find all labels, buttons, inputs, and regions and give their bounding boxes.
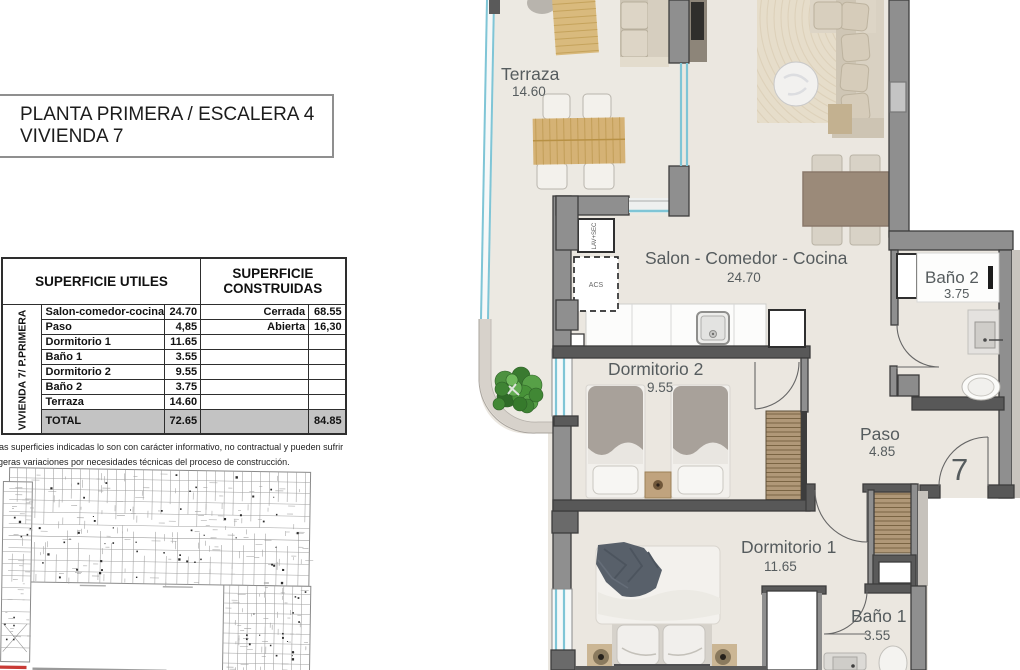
svg-text:Paso: Paso — [860, 424, 900, 444]
svg-text:14.60: 14.60 — [512, 84, 546, 99]
svg-text:Baño 2: Baño 2 — [925, 268, 979, 287]
svg-text:Baño 1: Baño 1 — [851, 606, 906, 626]
svg-text:3.55: 3.55 — [864, 628, 890, 643]
svg-text:Dormitorio 2: Dormitorio 2 — [608, 359, 703, 379]
svg-text:24.70: 24.70 — [727, 270, 761, 285]
svg-text:Salon - Comedor - Cocina: Salon - Comedor - Cocina — [645, 248, 848, 268]
svg-text:3.75: 3.75 — [944, 286, 969, 301]
svg-text:LAV+SEC: LAV+SEC — [592, 222, 598, 249]
svg-text:4.85: 4.85 — [869, 444, 895, 459]
svg-text:ACS: ACS — [589, 282, 604, 289]
svg-text:9.55: 9.55 — [647, 380, 673, 395]
svg-text:7: 7 — [951, 452, 968, 487]
svg-text:Terraza: Terraza — [501, 64, 560, 84]
svg-text:Dormitorio 1: Dormitorio 1 — [741, 537, 836, 557]
svg-text:11.65: 11.65 — [764, 559, 797, 574]
